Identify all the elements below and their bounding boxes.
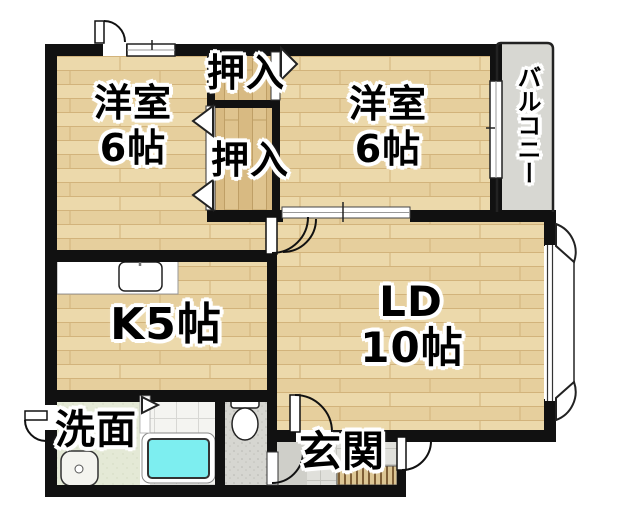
wall [215, 402, 225, 485]
washbasin-icon [61, 451, 98, 486]
wall [544, 399, 556, 442]
bedroom-left-size: 6帖 [100, 129, 166, 167]
wall [45, 390, 277, 402]
wall [267, 397, 277, 453]
living-dining-label: LD [379, 281, 443, 323]
wall [45, 485, 406, 497]
wall [410, 210, 556, 222]
wall [45, 250, 277, 262]
bedroom-right-size: 6帖 [355, 130, 421, 168]
bedroom-right-label: 洋室 [349, 85, 427, 123]
bathtub-icon [142, 433, 215, 483]
washroom-label: 洗面 [55, 410, 137, 450]
wall [207, 100, 280, 108]
closet-top-label: 押入 [207, 54, 285, 92]
kitchen-sink-icon [119, 262, 162, 291]
balcony-label: バルコニー [515, 65, 539, 185]
wall [267, 253, 277, 398]
floor-plan: 洋室 6帖 洋室 6帖 押入 押入 バルコニー K5帖 LD 10帖 洗面 玄関 [0, 0, 640, 513]
kitchen-label: K5帖 [110, 303, 222, 347]
entrance-label: 玄関 [299, 431, 385, 473]
closet-bottom-label: 押入 [211, 141, 289, 179]
living-dining-size: 10帖 [360, 327, 463, 369]
bedroom-left-label: 洋室 [94, 84, 172, 122]
